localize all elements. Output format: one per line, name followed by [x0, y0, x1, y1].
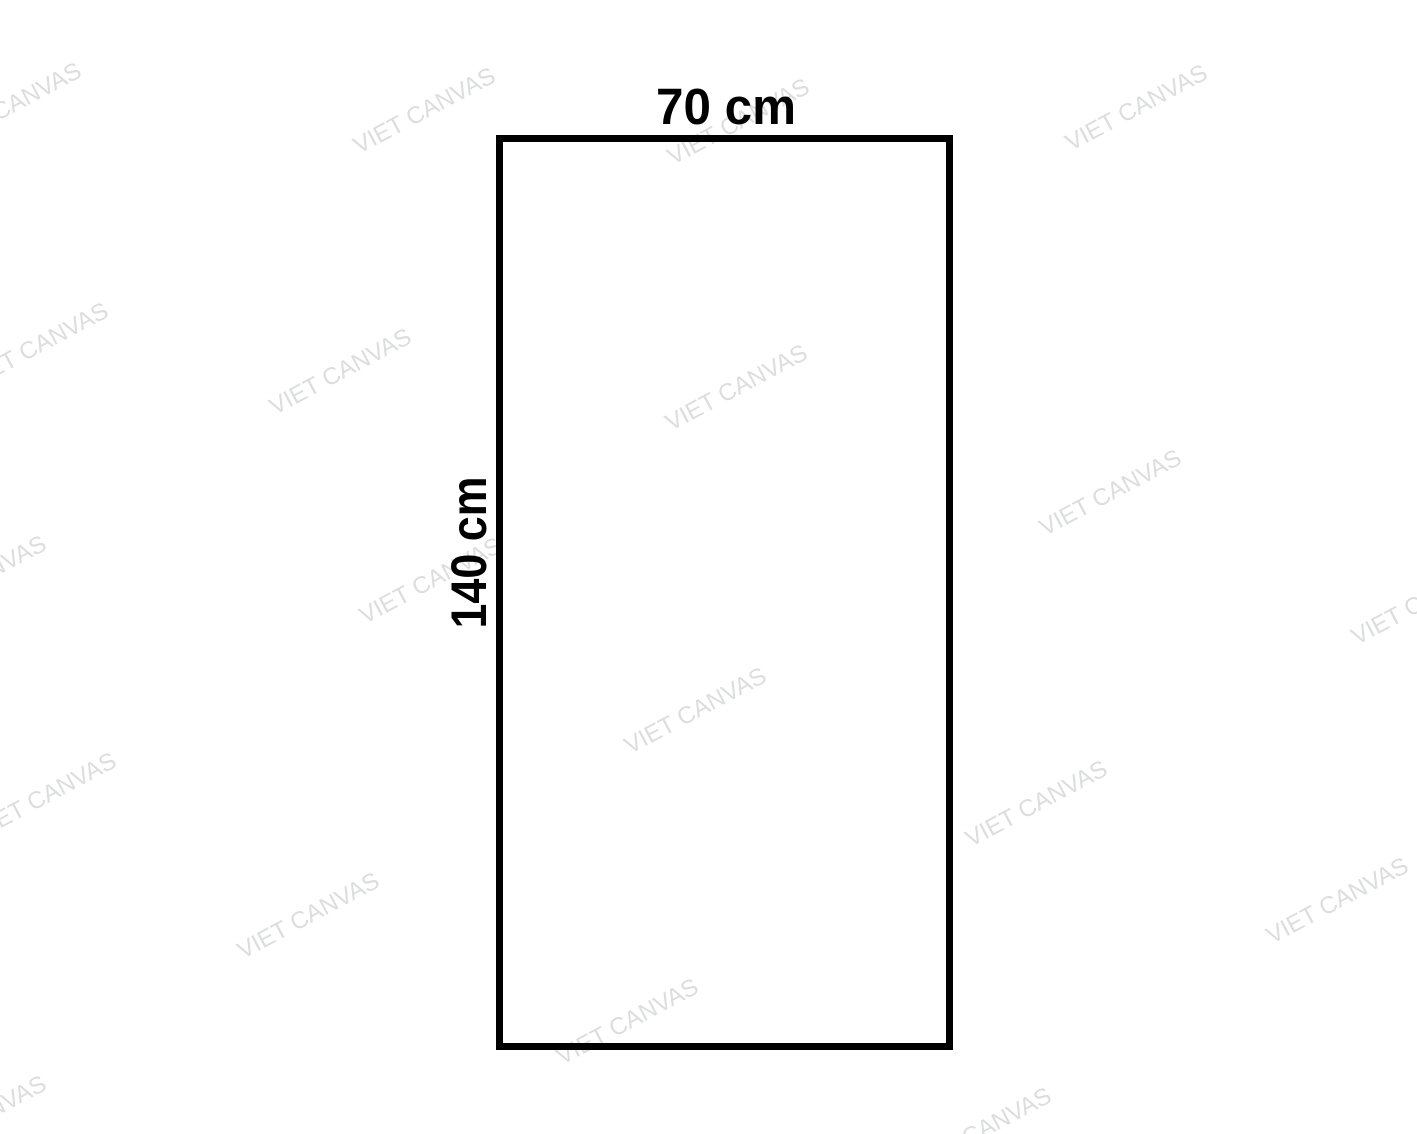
svg-text:140 cm: 140 cm [441, 477, 497, 629]
svg-text:70 cm: 70 cm [656, 78, 796, 135]
